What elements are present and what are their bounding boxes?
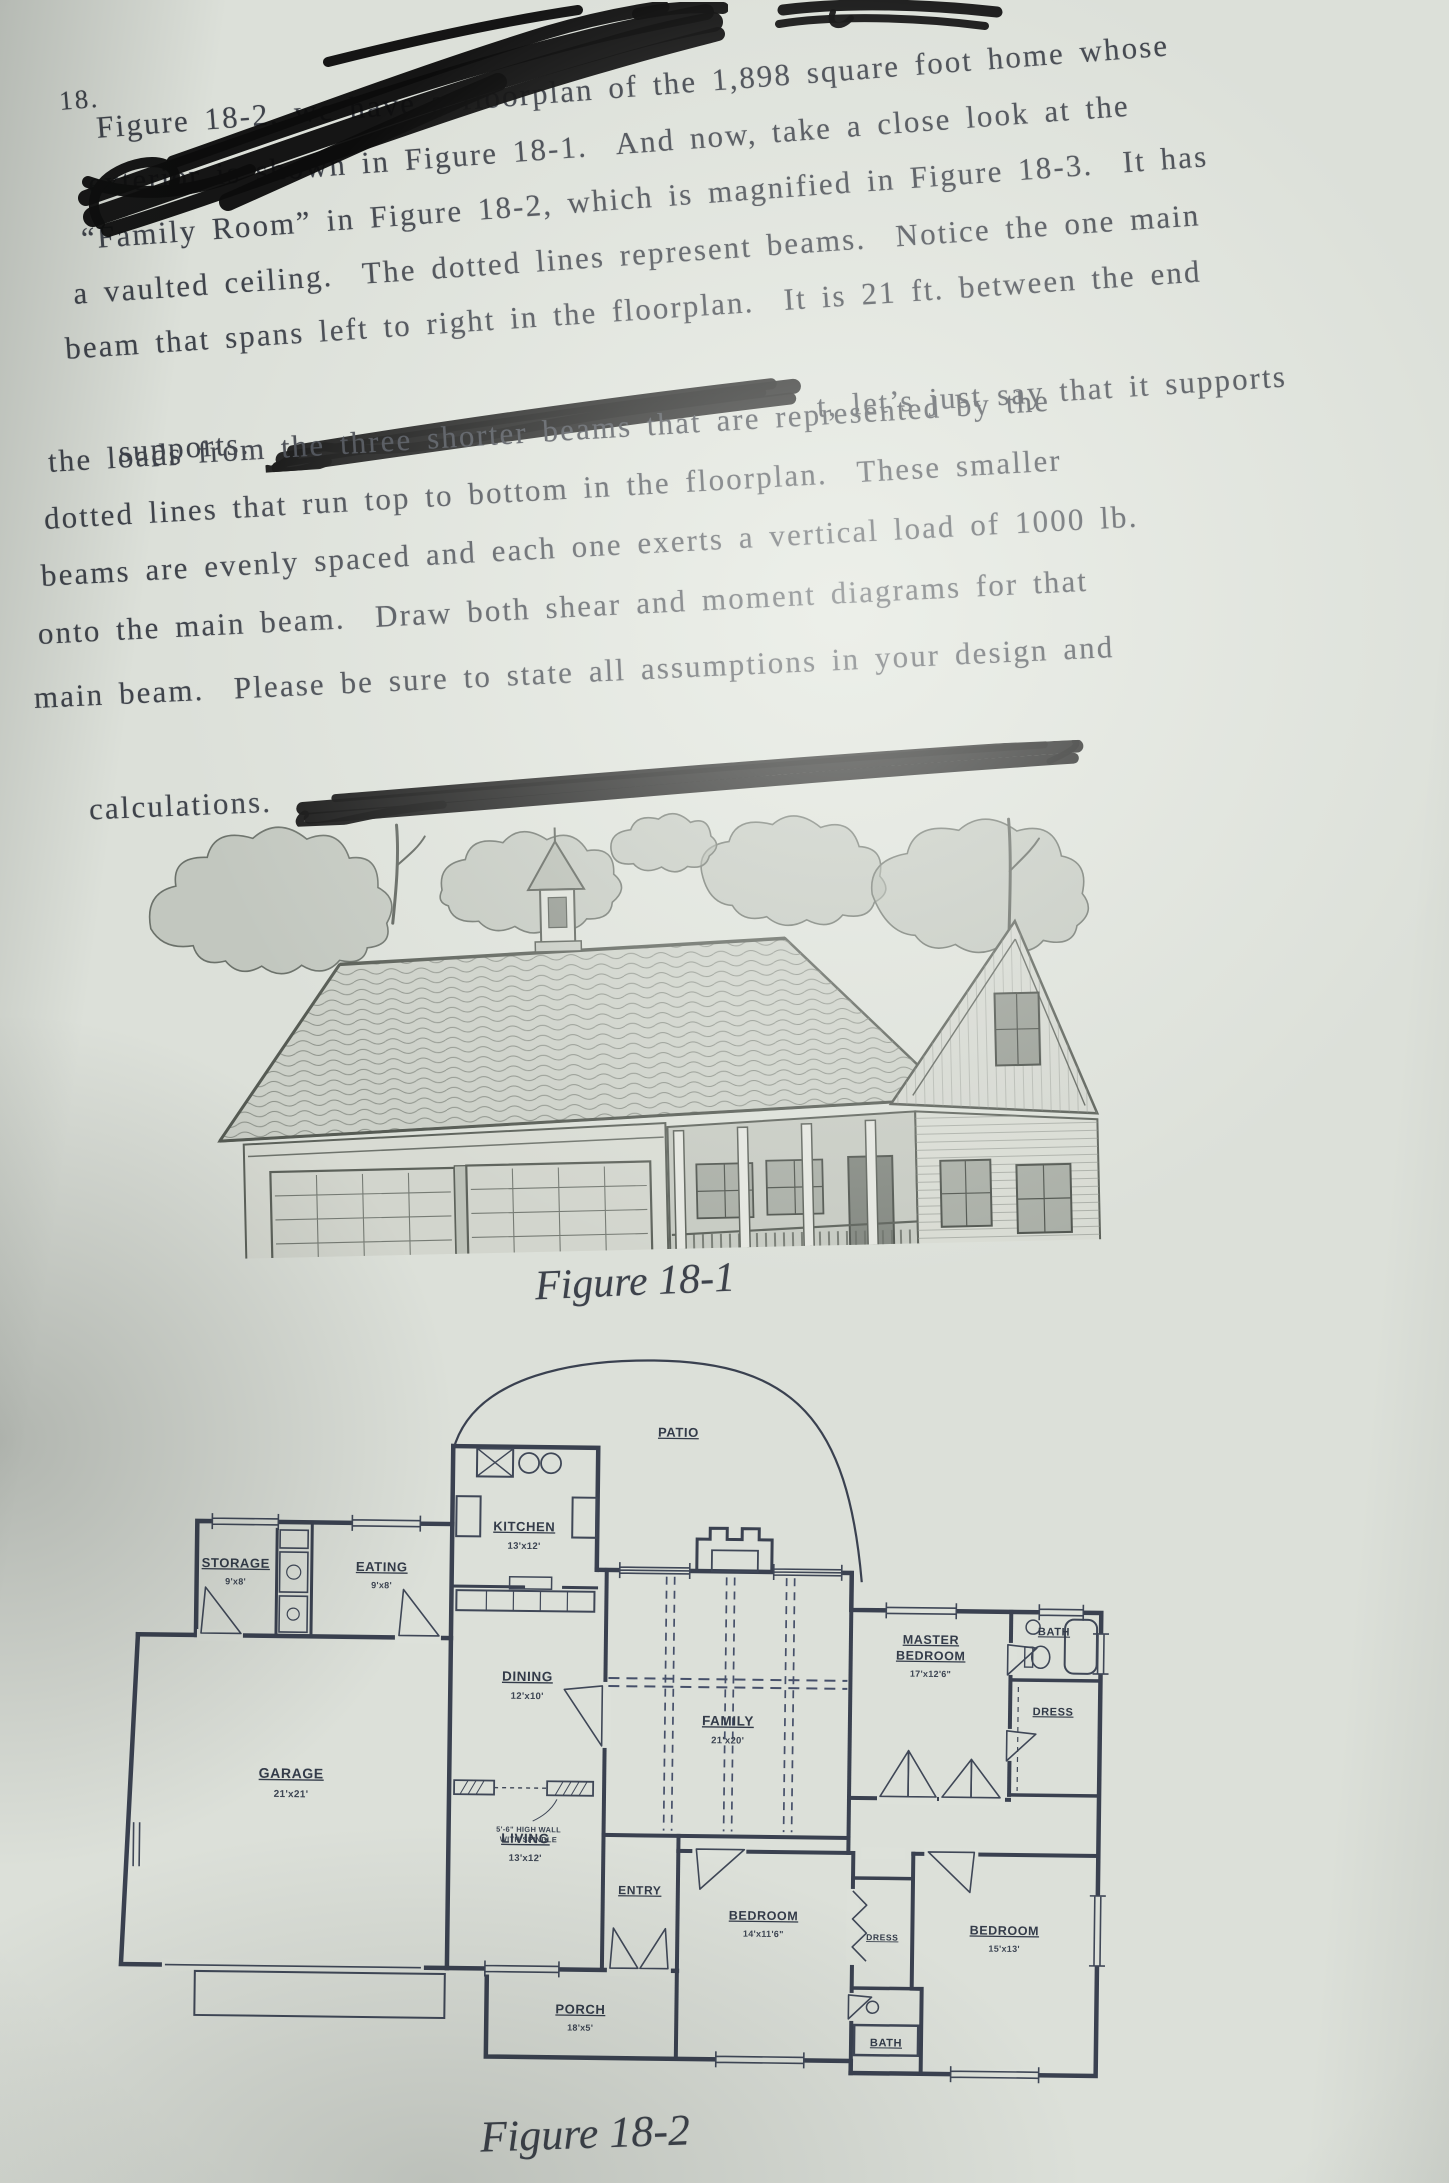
floorplan-walls [120,1442,1104,2076]
right-wing [915,1107,1100,1261]
svg-text:13'x12': 13'x12' [507,1541,540,1552]
room-label-bedroom-rear: BEDROOM [970,1923,1040,1938]
fireplace [697,1528,773,1572]
room-label-family: FAMILY [702,1713,754,1729]
room-label-eating: EATING [356,1559,408,1575]
svg-text:21'x21': 21'x21' [274,1789,309,1800]
photographed-textbook-page: 18. Figure 18-2, we have a floorplan of … [0,0,1449,2183]
svg-text:17'x12'6": 17'x12'6" [910,1669,951,1680]
svg-text:BEDROOM: BEDROOM [896,1648,966,1663]
main-beam-dashed-line [608,1686,847,1689]
svg-text:13'x12': 13'x12' [509,1853,542,1864]
room-label-porch: PORCH [555,2001,605,2017]
garage-door [270,1168,456,1261]
cross-beam-dashed-line [724,1577,735,1831]
room-label-living: LIVING [501,1831,550,1847]
marker-redaction-scribble [78,2,728,237]
figure-caption: Figure 18-2 [359,2100,811,2167]
room-label-master-bedroom: MASTER [903,1633,960,1648]
svg-text:9'x8': 9'x8' [371,1580,392,1590]
marker-redaction-scribble [775,0,1005,34]
cross-beam-dashed-line [664,1577,675,1831]
cross-beam-dashed-line [784,1578,795,1832]
figure-18-1-house-illustration [140,779,1105,1261]
room-label-bath-top: BATH [1038,1626,1070,1638]
garage-door [466,1161,652,1260]
room-label-bath-bottom: BATH [870,2037,902,2049]
room-labels: PATIO KITCHEN 13'x12' STORAGE 9'x8' EATI… [196,1419,1077,2052]
garage-front [243,1123,668,1261]
svg-text:15'x13': 15'x13' [988,1944,1020,1954]
room-label-kitchen: KITCHEN [493,1519,555,1535]
dining-counter [456,1576,594,1612]
beam-lines [607,1576,849,1833]
svg-text:9'x8': 9'x8' [225,1576,246,1586]
room-label-storage: STORAGE [202,1555,270,1571]
figure-18-2-floorplan: 5'-6" HIGH WALL WITH SPINDLE PATIO KITCH… [105,1324,1114,2106]
room-label-dining: DINING [502,1669,553,1685]
room-label-dress-right: DRESS [1033,1706,1074,1718]
main-beam-dashed-line [608,1678,847,1681]
bath-fixtures [866,1617,1097,2016]
utility-fixtures [279,1530,308,1632]
svg-text:21'x20': 21'x20' [711,1735,744,1746]
room-label-entry: ENTRY [618,1883,661,1898]
svg-text:12'x10': 12'x10' [511,1691,544,1702]
room-label-patio: PATIO [658,1425,699,1440]
svg-text:18'x5': 18'x5' [567,2022,593,2032]
figure-caption: Figure 18-1 [419,1249,851,1316]
svg-text:14'x11'6": 14'x11'6" [743,1929,784,1939]
garage-door-opening [161,1959,445,2018]
room-label-bedroom-front: BEDROOM [729,1908,799,1923]
front-porch [667,1111,920,1260]
room-label-garage: GARAGE [259,1765,324,1782]
room-label-dress-small: DRESS [866,1932,898,1942]
